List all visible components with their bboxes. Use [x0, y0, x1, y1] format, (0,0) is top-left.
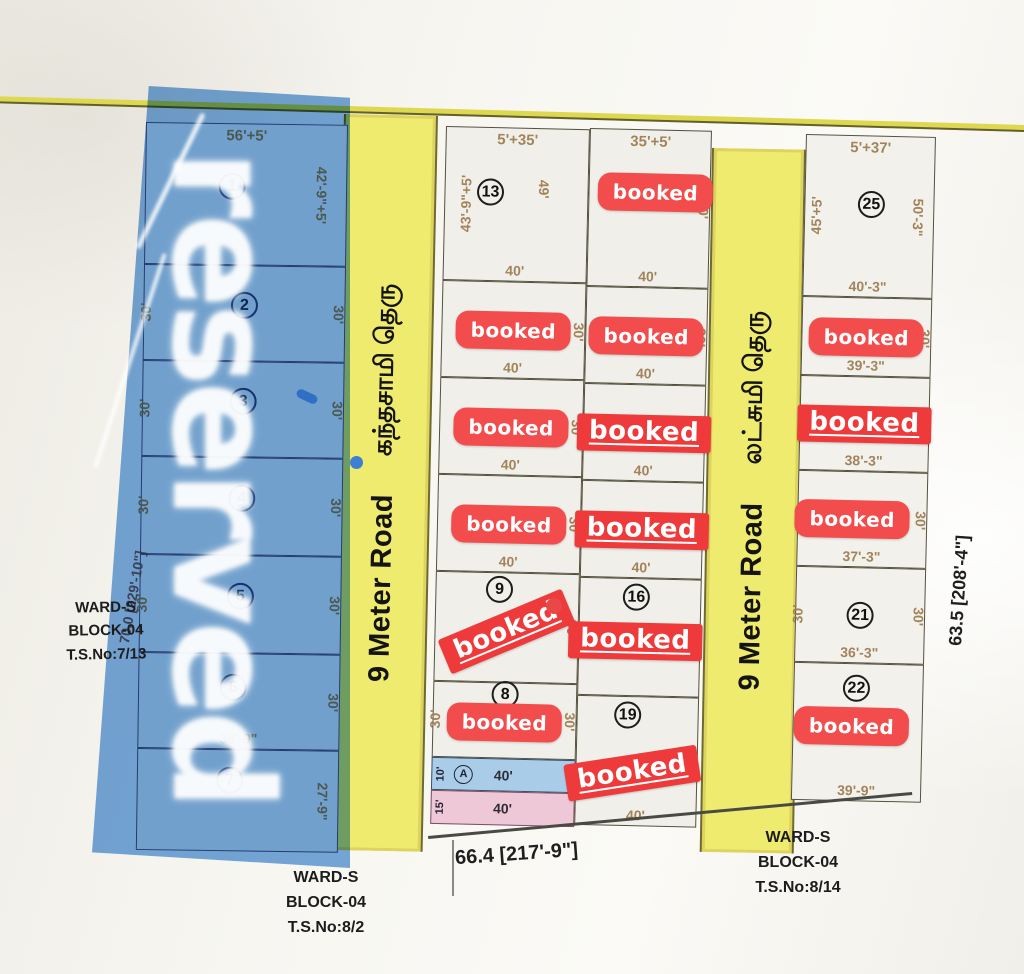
plot-column-mid_right: 35'+5'40'30'booked40'30'booked40'30'book… — [574, 128, 712, 828]
dimension-label: 49' — [536, 180, 552, 199]
plot-cell: 30'30'8booked — [432, 681, 578, 760]
plot-cell: 40'30'booked — [584, 286, 708, 386]
plot-cell: 37'-3"30'booked — [796, 470, 928, 569]
dimension-label: 40' — [503, 359, 522, 375]
booked-badge: booked — [568, 621, 703, 661]
plot-cell: 40'30'booked — [440, 280, 586, 380]
road-1-name: 9 Meter Road — [363, 494, 400, 683]
road-1-tamil-name: கந்தசாமி தெரு — [367, 283, 405, 456]
booked-badge: booked — [451, 504, 567, 545]
plot-cell: 40'30'booked — [438, 377, 584, 477]
plot-cell: 5'+37'40'-3"45'+5'50'-3"25 — [802, 134, 936, 299]
reserved-watermark: reserved — [142, 150, 303, 806]
dimension-label: 5'+37' — [850, 139, 891, 157]
dimension-label: 36'-3" — [840, 644, 878, 661]
plot-layout-map: 9 Meter Road கந்தசாமி தெரு 9 Meter Road … — [0, 0, 1024, 974]
booked-badge: booked — [597, 172, 713, 213]
plot-cell: 40'30'booked — [580, 480, 704, 580]
plot-number: 25 — [858, 191, 886, 219]
dimension-label: 40' — [499, 553, 518, 569]
plot-cell: 39'-3"30'booked — [801, 296, 933, 378]
ward-label-right: WARD-S BLOCK-04 T.S.No:8/14 — [698, 826, 898, 900]
dimension-label: 30' — [913, 511, 929, 530]
booked-badge: booked — [563, 745, 701, 802]
strip-plot-letter: A — [454, 764, 473, 783]
ward-line: WARD-S — [25, 595, 185, 621]
dimension-label: 40' — [494, 767, 513, 783]
dimension-label: 35'+5' — [630, 133, 671, 151]
booked-badge: booked — [574, 510, 709, 550]
dimension-label: 40'-3" — [848, 278, 886, 295]
ts-no-line: T.S.No:7/13 — [26, 641, 186, 667]
road-2-name: 9 Meter Road — [733, 502, 769, 691]
plot-number: 21 — [846, 602, 874, 630]
block-line: BLOCK-04 — [698, 851, 898, 876]
booked-badge: booked — [446, 702, 562, 743]
plot-cell: 30'9booked — [433, 571, 579, 684]
ts-no-line: T.S.No:8/2 — [236, 916, 416, 941]
bottom-boundary-measure: 66.4 [217'-9"] — [454, 839, 579, 871]
reserve-strip: A40'10' — [431, 757, 576, 793]
plot-cell: 36'-3"30'30'21 — [794, 566, 926, 665]
ts-no-line: T.S.No:8/14 — [698, 876, 898, 901]
ward-label-left: WARD-S BLOCK-04 T.S.No:7/13 — [25, 595, 186, 668]
ward-label-bottom: WARD-S BLOCK-04 T.S.No:8/2 — [236, 866, 416, 940]
plot-column-right: 5'+37'40'-3"45'+5'50'-3"2539'-3"30'booke… — [791, 134, 936, 803]
plot-number: 19 — [614, 701, 642, 729]
dimension-label: 30' — [910, 607, 926, 626]
plot-cell: 38'-3"booked — [798, 375, 930, 473]
booked-badge: booked — [455, 310, 571, 351]
dimension-label: 45'+5' — [808, 196, 825, 235]
blue-pen-dot — [350, 456, 363, 469]
booked-badge: booked — [453, 407, 569, 448]
plot-number: 9 — [486, 576, 514, 604]
dimension-label: 39'-3" — [847, 357, 885, 374]
ward-line: WARD-S — [236, 866, 416, 891]
booked-badge: booked — [794, 499, 910, 540]
road-2: 9 Meter Road லட்சுமி தெரு — [700, 148, 806, 854]
booked-badge: booked — [808, 317, 924, 358]
booked-badge: booked — [797, 404, 932, 444]
road-1-label: 9 Meter Road கந்தசாமி தெரு — [362, 283, 404, 682]
dimension-label: 50'-3" — [910, 198, 927, 236]
dimension-label: 40' — [638, 268, 657, 284]
right-boundary-measure: 63.5 [208'-4"] — [945, 534, 974, 646]
ward-line: WARD-S — [698, 826, 898, 851]
dimension-label: 40' — [626, 807, 645, 823]
dimension-label: 40' — [636, 365, 655, 381]
dimension-label: 40' — [634, 462, 653, 478]
red-pen-dot — [546, 598, 562, 614]
road-2-label: 9 Meter Road லட்சுமி தெரு — [733, 311, 774, 691]
dimension-label: 43'-9"+5' — [457, 175, 474, 233]
dimension-label: 38'-3" — [844, 452, 882, 469]
dimension-label: 30' — [789, 604, 805, 623]
booked-badge: booked — [588, 316, 704, 357]
dimension-label: 40' — [631, 559, 650, 575]
plot-cell: 5'+35'40'43'-9"+5'49'13 — [443, 126, 590, 283]
plot-cell: 40'19booked — [574, 695, 699, 828]
dimension-label: 40' — [505, 262, 524, 278]
block-line: BLOCK-04 — [236, 891, 416, 916]
dimension-label: 15' — [434, 799, 446, 814]
dimension-label: 37'-3" — [842, 548, 880, 565]
plot-number: 16 — [623, 583, 651, 611]
plot-cell: 35'+5'40'30'booked — [586, 128, 712, 289]
plot-number: 22 — [843, 674, 871, 702]
booked-badge: booked — [793, 706, 909, 747]
dimension-label: 5'+35' — [497, 131, 538, 149]
dimension-label: 40' — [501, 456, 520, 472]
plot-column-mid_left: 5'+35'40'43'-9"+5'49'1340'30'booked40'30… — [430, 126, 590, 827]
plot-cell: 39'-9"22booked — [791, 662, 924, 803]
booked-badge: booked — [577, 413, 712, 453]
dimension-label: 10' — [435, 766, 447, 781]
road-2-tamil-name: லட்சுமி தெரு — [736, 311, 773, 465]
dimension-label: 40' — [493, 800, 512, 816]
dimension-label: 30' — [427, 709, 443, 728]
plot-cell: 40'30'booked — [582, 383, 706, 483]
block-line: BLOCK-04 — [26, 618, 186, 644]
plot-number: 13 — [477, 178, 505, 206]
plot-cell: 30'16booked — [577, 577, 702, 698]
reserve-strip: 40'15' — [430, 790, 575, 827]
plot-cell: 40'30'booked — [436, 474, 582, 574]
